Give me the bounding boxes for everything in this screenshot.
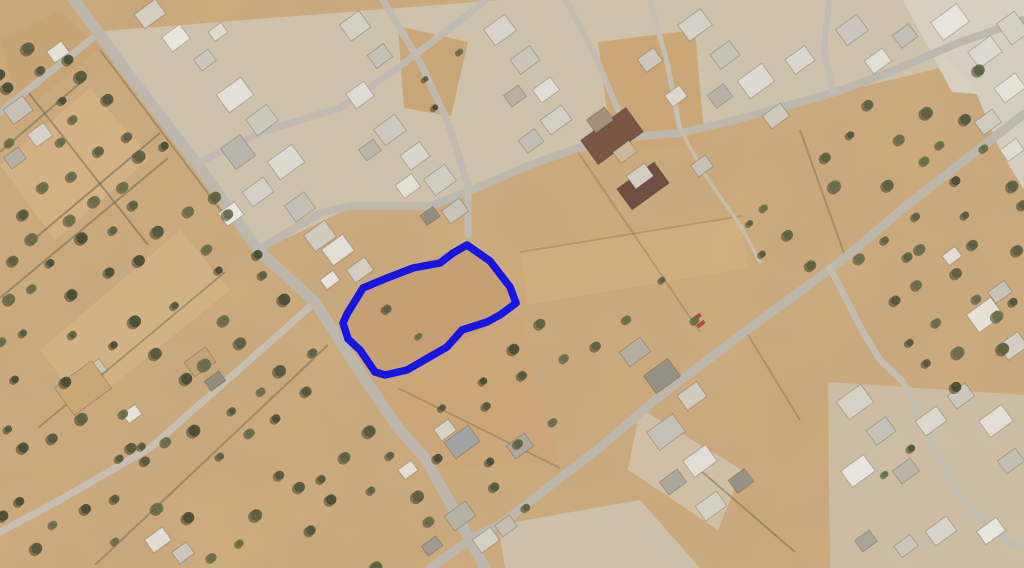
satellite-map-view[interactable] xyxy=(0,0,1024,568)
satellite-image[interactable] xyxy=(0,0,1024,568)
